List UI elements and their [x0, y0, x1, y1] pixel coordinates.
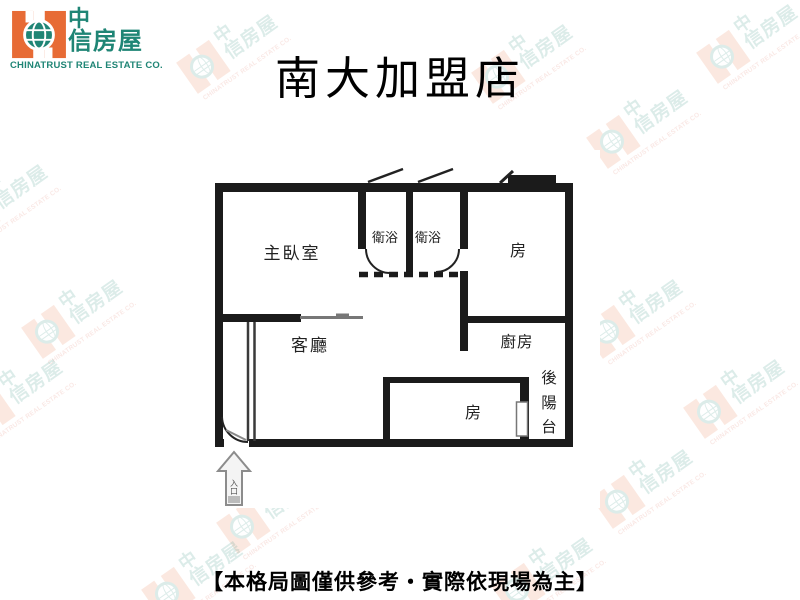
brand-zh-line1: 中 — [68, 8, 143, 30]
watermark-logo: 中信房屋CHINATRUST REAL ESTATE CO. — [0, 133, 97, 276]
watermark-brand-zh: 中信房屋 — [717, 342, 788, 408]
room-label-living: 客廳 — [291, 336, 329, 356]
globe-icon — [12, 10, 66, 60]
watermark-brand-english: CHINATRUST REAL ESTATE CO. — [612, 98, 721, 177]
hall-slider-handle — [336, 314, 349, 318]
watermark-logo: 中信房屋CHINATRUST REAL ESTATE CO. — [18, 248, 173, 391]
watermark-globe-icon — [0, 190, 1, 244]
window-symbol-2 — [418, 169, 453, 182]
page-root: 中信房屋CHINATRUST REAL ESTATE CO.中信房屋CHINAT… — [0, 0, 800, 600]
entrance-label-char2: 口 — [230, 487, 238, 496]
bathroom2-door-arc — [436, 249, 459, 272]
watermark-logo: 中信房屋CHINATRUST REAL ESTATE CO. — [578, 248, 733, 391]
brand-name-zh: 中 信房屋 — [68, 8, 143, 54]
watermark-brand-zh: 中信房屋 — [615, 262, 686, 328]
watermark-brand-english: CHINATRUST REAL ESTATE CO. — [47, 288, 156, 367]
watermark-brand-english: CHINATRUST REAL ESTATE CO. — [617, 458, 726, 537]
room-label-bathroom-1: 衛浴 — [372, 231, 398, 246]
watermark-brand-zh: 中信房屋 — [0, 147, 52, 213]
watermark-globe-icon — [683, 385, 738, 439]
window-symbol-1 — [368, 169, 403, 182]
room-label-balcony-char2: 陽 — [541, 394, 557, 412]
brand-zh-line2: 信房屋 — [68, 30, 143, 54]
brand-name-english: CHINATRUST REAL ESTATE CO. — [10, 60, 170, 71]
watermark-logo: 中信房屋CHINATRUST REAL ESTATE CO. — [680, 328, 800, 471]
watermark-logo: 中信房屋CHINATRUST REAL ESTATE CO. — [0, 328, 112, 471]
watermark-brand-zh: 中信房屋 — [55, 262, 126, 328]
watermark-brand-zh: 中信房屋 — [625, 432, 696, 498]
room-label-bathroom-2: 衛浴 — [415, 231, 441, 246]
bathroom1-door-arc — [366, 249, 390, 273]
brand-logo: 中 信房屋 CHINATRUST REAL ESTATE CO. — [10, 8, 170, 78]
floor-plan: 主臥室 衛浴 衛浴 房 客廳 廚房 房 後 陽 台 入 口 — [185, 150, 600, 508]
watermark-brand-zh: 中信房屋 — [0, 342, 67, 408]
room-label-balcony-char3: 台 — [541, 418, 557, 436]
room-label-room-top: 房 — [510, 241, 526, 260]
entrance-arrow-icon: 入 口 — [218, 452, 250, 505]
watermark-logo: 中信房屋CHINATRUST REAL ESTATE CO. — [588, 418, 743, 561]
watermark-globe-icon — [21, 305, 76, 359]
watermark-brand-english: CHINATRUST REAL ESTATE CO. — [709, 368, 800, 447]
watermark-brand-english: CHINATRUST REAL ESTATE CO. — [0, 173, 81, 252]
balcony-door — [517, 402, 528, 436]
room-label-room-bottom: 房 — [465, 403, 481, 422]
room-label-balcony-char1: 後 — [541, 369, 557, 387]
watermark-globe-icon — [0, 385, 16, 439]
disclaimer-text: 【本格局圖僅供參考‧實際依現場為主】 — [0, 566, 800, 596]
room-label-kitchen: 廚房 — [500, 332, 533, 351]
watermark-brand-english: CHINATRUST REAL ESTATE CO. — [0, 368, 96, 447]
watermark-brand-english: CHINATRUST REAL ESTATE CO. — [607, 288, 716, 367]
room-label-master-bedroom: 主臥室 — [264, 244, 321, 264]
